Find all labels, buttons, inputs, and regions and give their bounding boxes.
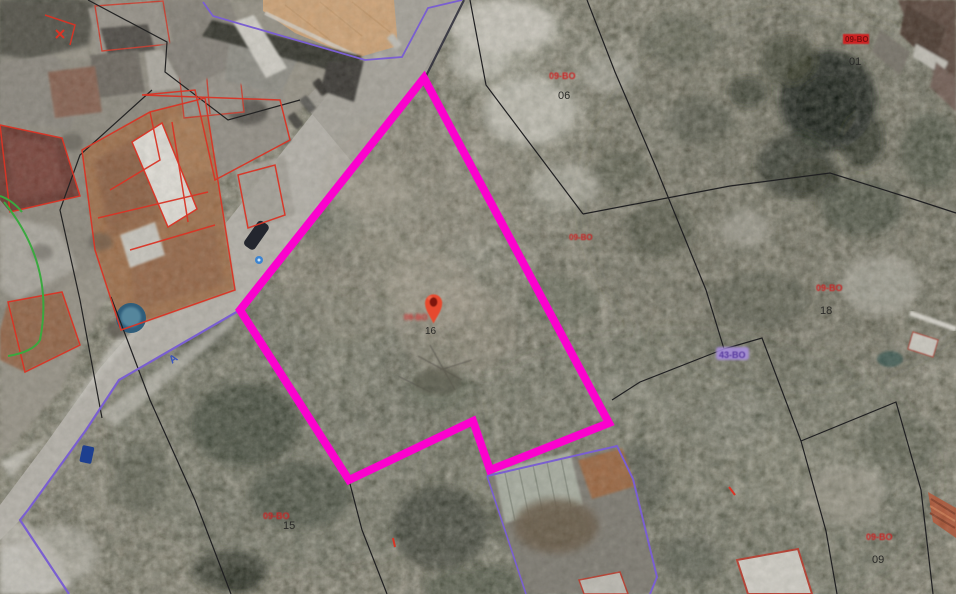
svg-text:09-BO: 09-BO — [866, 532, 893, 542]
svg-text:09: 09 — [872, 554, 884, 566]
svg-text:09-BO: 09-BO — [549, 71, 576, 81]
svg-text:18: 18 — [820, 305, 832, 317]
svg-text:43-BO: 43-BO — [719, 350, 746, 360]
svg-text:09-BO: 09-BO — [569, 233, 593, 242]
svg-text:09-BO: 09-BO — [404, 313, 428, 322]
svg-text:09-BO: 09-BO — [845, 35, 869, 44]
svg-text:15: 15 — [283, 520, 295, 532]
svg-text:16: 16 — [425, 326, 437, 337]
svg-text:09-BO: 09-BO — [816, 283, 843, 293]
svg-text:01: 01 — [849, 56, 861, 68]
svg-text:06: 06 — [558, 90, 570, 102]
